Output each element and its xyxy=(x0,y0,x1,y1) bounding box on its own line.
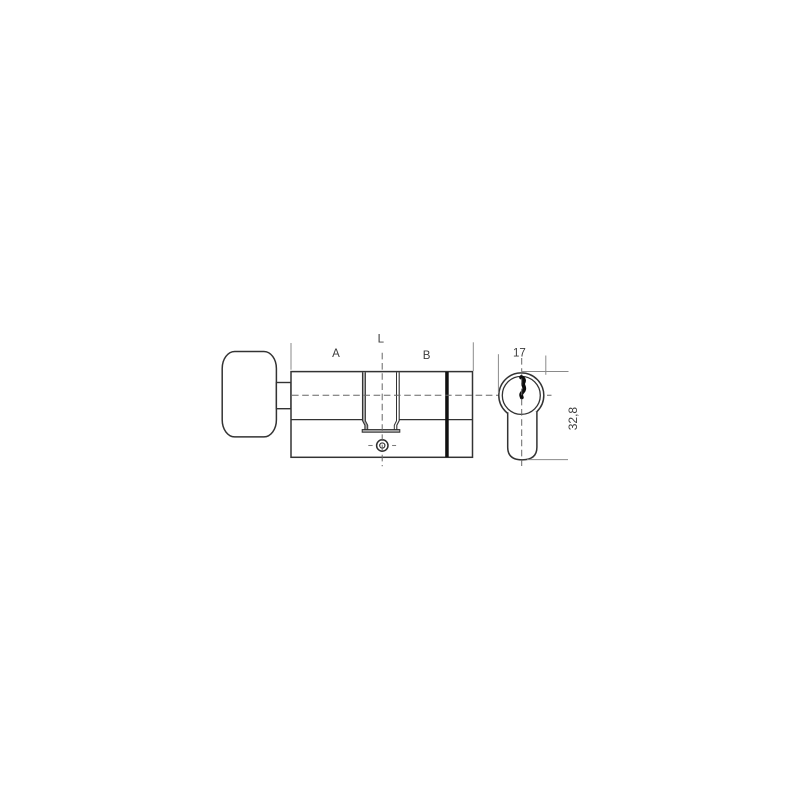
svg-text:B: B xyxy=(423,350,431,362)
svg-text:32,8: 32,8 xyxy=(566,407,580,431)
svg-text:L: L xyxy=(378,334,385,346)
svg-text:A: A xyxy=(332,348,340,360)
svg-text:17: 17 xyxy=(513,348,526,360)
